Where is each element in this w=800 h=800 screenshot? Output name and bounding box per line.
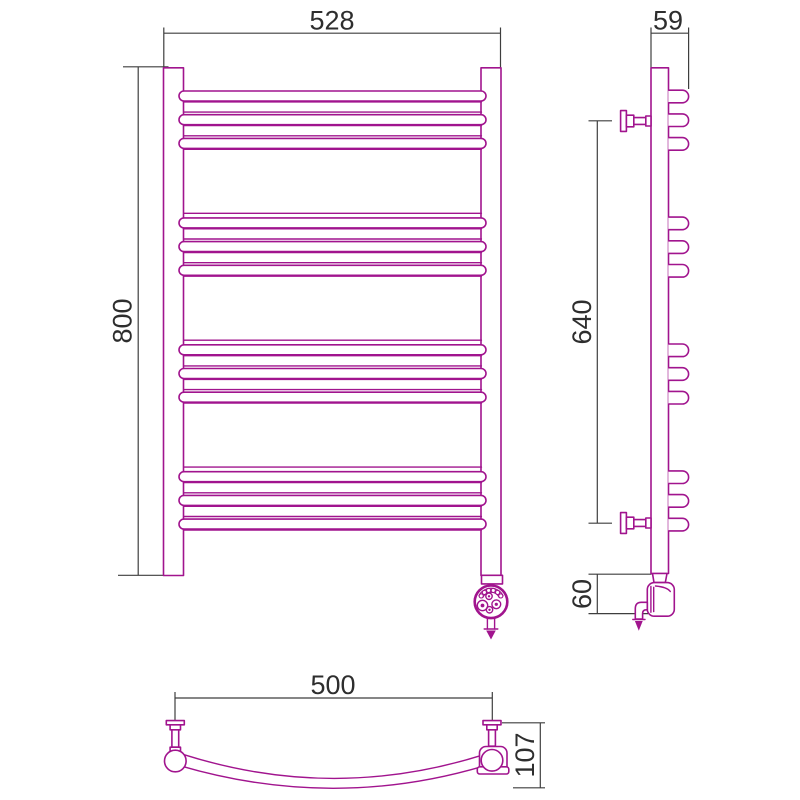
- rung: [179, 495, 486, 505]
- rung: [179, 138, 486, 148]
- rung-tip: [668, 344, 688, 357]
- dim-label-rail-width: 500: [310, 670, 355, 700]
- rung-tip: [668, 90, 688, 103]
- rung: [179, 472, 486, 482]
- power-cable: [635, 602, 647, 619]
- plan-view: 500 107: [165, 670, 546, 788]
- front-height-dimension: 800: [108, 67, 169, 576]
- drawing-sheet: 528 800: [0, 0, 800, 800]
- element-collar: [482, 575, 503, 584]
- wall-bracket-top: [621, 111, 651, 132]
- dim-label-width: 528: [309, 6, 354, 36]
- plan-right-post-circle: [481, 750, 503, 772]
- plan-wall-bracket-left: [166, 721, 184, 752]
- rung-tip: [668, 368, 688, 381]
- heating-element-front: [475, 575, 508, 639]
- front-rungs: [179, 91, 486, 530]
- plan-wall-bracket-right: [483, 721, 501, 747]
- dim-label-depth: 59: [653, 6, 683, 36]
- power-cable-arrow-icon: [484, 618, 498, 640]
- rung: [179, 115, 486, 125]
- rung-tip: [668, 241, 688, 254]
- dim-label-bracket-span: 640: [567, 299, 597, 344]
- rung-tip: [668, 217, 688, 230]
- plan-left-post-circle: [165, 750, 187, 772]
- side-view: 59 640 60: [567, 6, 689, 631]
- rung: [179, 218, 486, 228]
- front-view: 528 800: [108, 6, 508, 640]
- element-collar: [653, 574, 668, 583]
- rung-tip: [668, 138, 688, 151]
- wall-bracket-bottom: [621, 513, 651, 534]
- plan-curve-depth-dimension: 107: [502, 723, 545, 788]
- rung: [179, 369, 486, 379]
- rung-tip: [668, 114, 688, 127]
- rung: [179, 91, 486, 101]
- rung-tip: [668, 471, 688, 484]
- plan-width-dimension: 500: [175, 670, 492, 720]
- dim-label-curve-depth: 107: [510, 732, 540, 777]
- dim-label-height: 800: [108, 298, 138, 343]
- dim-label-element-drop: 60: [567, 579, 597, 609]
- rung: [179, 242, 486, 252]
- power-cable-arrow-icon: [633, 620, 645, 631]
- plan-curved-rung: [180, 755, 483, 788]
- rung-tip: [668, 265, 688, 278]
- front-width-dimension: 528: [164, 6, 501, 68]
- rung: [179, 519, 486, 529]
- rung: [179, 265, 486, 275]
- rung: [179, 392, 486, 402]
- side-rung-tips: [668, 90, 688, 531]
- side-post: [651, 68, 669, 574]
- technical-drawing-canvas: 528 800: [0, 0, 800, 800]
- rung: [179, 345, 486, 355]
- rung-tip: [668, 391, 688, 404]
- side-bracket-span-dimension: 640: [567, 121, 612, 523]
- rung-tip: [668, 518, 688, 531]
- rung-tip: [668, 495, 688, 508]
- heating-element-side: [633, 574, 675, 631]
